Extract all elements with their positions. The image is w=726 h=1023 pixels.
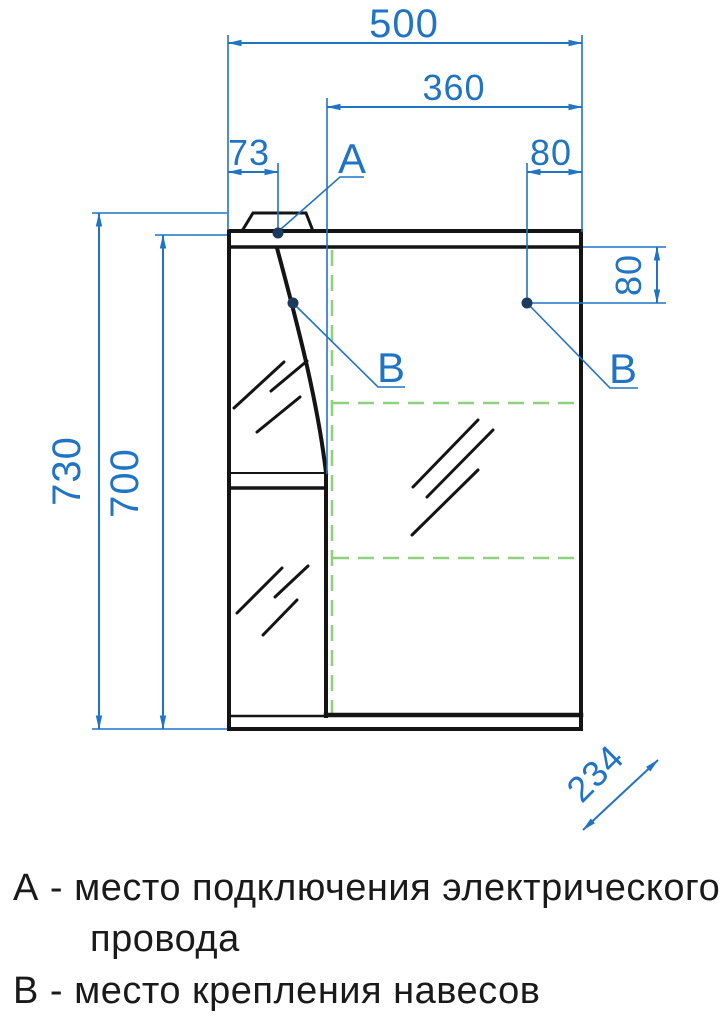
dimension-value-hinge-inset-side: 80 [608, 254, 649, 296]
legend-line-a2: провода [90, 918, 240, 960]
mirror-hatch-line [237, 568, 282, 613]
dimension-value-overall-height: 730 [45, 436, 89, 506]
dimension-value-overall-width: 500 [369, 2, 439, 46]
left-door-curved-edge [277, 248, 326, 473]
dimension-value-door-width: 360 [422, 67, 485, 108]
dimension-value-lamp-offset: 73 [228, 132, 270, 173]
leader-line-a [281, 177, 364, 229]
legend-line-b: В - место крепления навесов [13, 970, 540, 1012]
label-point-b-left: В [377, 344, 405, 391]
technical-drawing-canvas: 500 360 73 80 730 700 80 234 А В В А - м… [0, 0, 726, 1023]
label-point-a: А [338, 135, 366, 182]
dimension-value-hinge-inset-top: 80 [530, 132, 572, 173]
legend-line-a1: А - место подключения электрического [13, 867, 720, 909]
dimension-value-depth: 234 [558, 736, 632, 810]
mirror-hatch-line [263, 600, 297, 635]
label-point-b-right: В [609, 345, 637, 392]
point-marker-a [273, 228, 284, 239]
point-marker-b-left [288, 298, 299, 309]
mirror-hatch-line [271, 361, 307, 391]
mirror-hatch-line [257, 397, 300, 432]
point-marker-b-right [522, 298, 533, 309]
dimension-value-body-height: 700 [103, 448, 147, 518]
